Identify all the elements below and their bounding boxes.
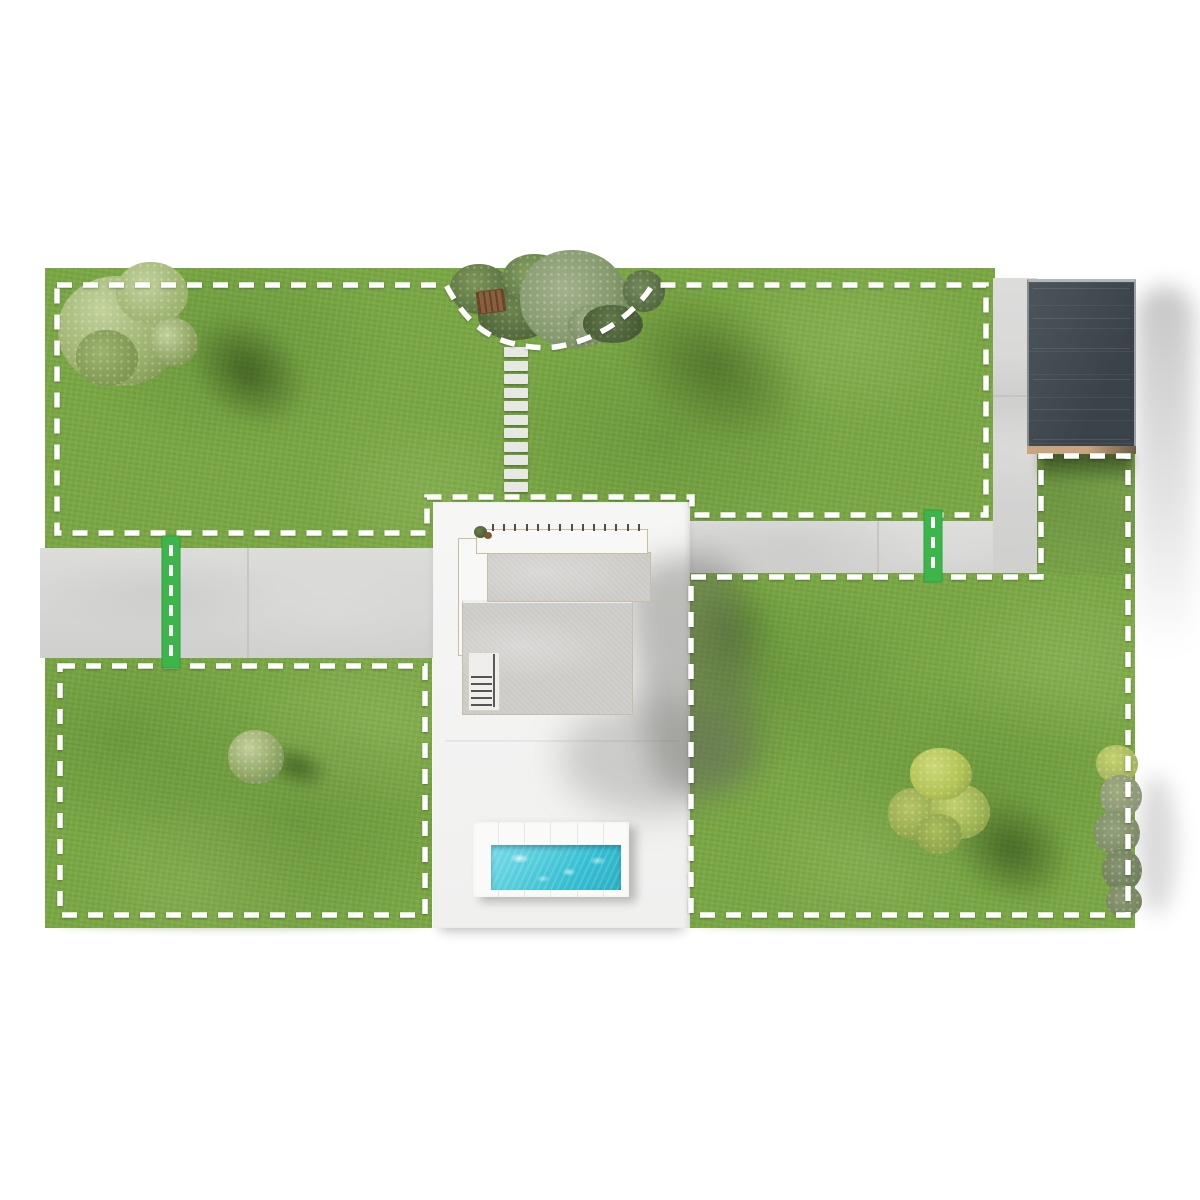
stone: [504, 415, 528, 425]
beam: [559, 524, 561, 531]
tree-canopy: [150, 318, 198, 366]
garage-roof: [1027, 279, 1136, 446]
garage-shadow-on-grass: [1040, 450, 1132, 484]
hedge-row: [1090, 745, 1142, 917]
tree-canopy: [910, 748, 972, 800]
pergola-deck: [476, 529, 648, 554]
stone: [504, 361, 528, 371]
garden-bed: [448, 250, 663, 350]
path-seam: [247, 548, 249, 658]
pool-water: [491, 845, 621, 890]
shrub: [583, 305, 643, 343]
tree-canopy: [916, 814, 962, 854]
house-roof-shadow: [560, 700, 740, 815]
hedge-shadow: [1137, 775, 1177, 915]
beam: [615, 524, 617, 531]
stone: [504, 388, 528, 398]
step: [471, 704, 492, 706]
pergola-beams: [492, 524, 640, 531]
step: [471, 676, 492, 678]
garage-panel: [1033, 379, 1130, 380]
bush-canopy: [228, 730, 284, 784]
yard-aerial-map: [0, 0, 1200, 1200]
tree-canopy: [116, 262, 188, 324]
beam: [582, 524, 584, 531]
beam: [526, 524, 528, 531]
garage-panel: [1033, 288, 1130, 289]
beam: [627, 524, 629, 531]
stone: [504, 469, 528, 479]
garage-panel: [1033, 318, 1130, 319]
stone: [504, 401, 528, 411]
tree-canopy: [76, 330, 138, 386]
garage-panel: [1033, 439, 1130, 440]
garage-base-strip: [1027, 446, 1136, 454]
house-upper-roof: [487, 552, 651, 602]
lime-trees: [888, 748, 994, 854]
stone: [504, 455, 528, 465]
beam: [571, 524, 573, 531]
garage-shadow: [1136, 286, 1194, 656]
stone: [504, 482, 528, 492]
stepping-stone-path: [504, 347, 528, 492]
paved-path-left: [40, 548, 433, 658]
beam: [514, 524, 516, 531]
zone-bottom-left-lawn[interactable]: [45, 656, 432, 928]
stair-rail: [493, 654, 495, 707]
stone: [504, 442, 528, 452]
beam: [593, 524, 595, 531]
stone: [504, 428, 528, 438]
garage-panel: [1033, 348, 1130, 349]
step: [471, 697, 492, 699]
large-tree: [58, 262, 200, 392]
hedge-bush: [1106, 885, 1142, 917]
shrub: [623, 270, 665, 312]
paved-path-right: [683, 521, 1037, 573]
beam: [503, 524, 505, 531]
beam: [638, 524, 640, 531]
garage-roof-panels: [1033, 288, 1130, 440]
potted-plant: [484, 532, 492, 539]
beam: [537, 524, 539, 531]
stone: [504, 374, 528, 384]
beam: [548, 524, 550, 531]
path-seam: [877, 521, 879, 573]
garage-panel: [1033, 409, 1130, 410]
house-stairs: [471, 676, 492, 706]
beam: [492, 524, 494, 531]
wooden-bench: [476, 288, 507, 315]
step: [471, 690, 492, 692]
round-bush: [228, 730, 284, 784]
beam: [604, 524, 606, 531]
pergola: [476, 524, 648, 554]
step: [471, 683, 492, 685]
